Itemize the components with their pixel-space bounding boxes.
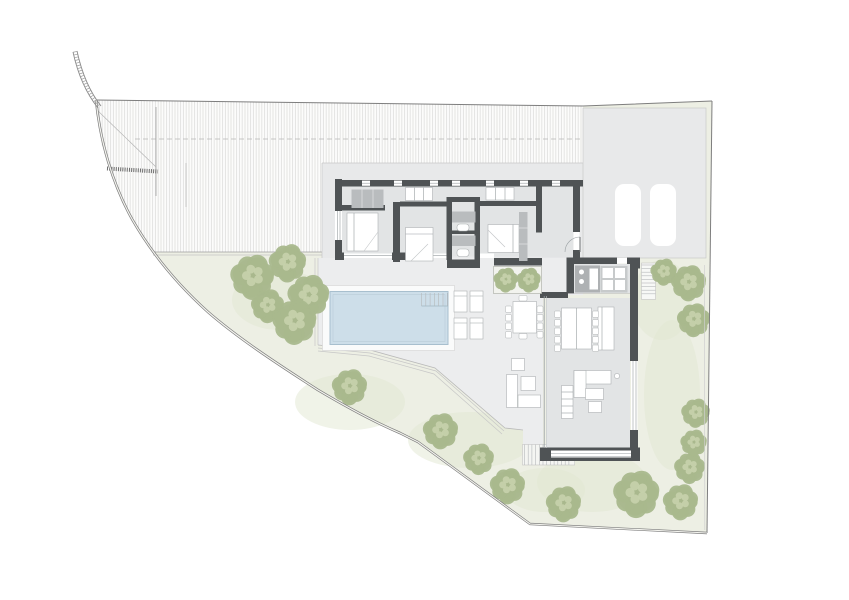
bath-south-block bbox=[447, 260, 480, 269]
sun-lounger bbox=[470, 291, 483, 312]
living-east-wall bbox=[630, 264, 638, 361]
dining-chair bbox=[506, 315, 512, 322]
utility-door-opening bbox=[617, 258, 627, 264]
outdoor-dining-table bbox=[513, 302, 537, 334]
dining-chair bbox=[519, 334, 527, 340]
bed3-wardrobe bbox=[519, 212, 528, 261]
dining-chair bbox=[555, 337, 561, 344]
bed3-north-partition bbox=[480, 201, 540, 206]
master-bed bbox=[347, 213, 378, 251]
sink-bowl-1 bbox=[579, 270, 584, 275]
pool-area bbox=[323, 286, 455, 351]
utility-north-wall bbox=[574, 258, 617, 265]
counter-appliance bbox=[590, 269, 599, 290]
dining-chair bbox=[593, 311, 599, 318]
south-corner bbox=[335, 253, 344, 261]
sun-lounger bbox=[454, 291, 467, 312]
living-se-corner bbox=[630, 430, 638, 449]
kitchen-island bbox=[598, 307, 614, 350]
appliance-4 bbox=[615, 280, 625, 290]
dining-chair bbox=[519, 296, 527, 302]
sink-bowl-2 bbox=[579, 279, 584, 284]
dining-chair bbox=[593, 320, 599, 327]
parking-spot bbox=[615, 184, 641, 246]
master-wardrobe bbox=[352, 190, 384, 209]
dining-chair bbox=[537, 306, 543, 313]
shelf-unit bbox=[562, 386, 574, 419]
dining-chair bbox=[537, 323, 543, 330]
site-plan-drawing bbox=[0, 0, 849, 600]
bath1-vanity bbox=[452, 212, 476, 223]
bed2-closet bbox=[406, 188, 433, 201]
dining-chair bbox=[593, 328, 599, 335]
dining-chair bbox=[555, 328, 561, 335]
dining-chair bbox=[555, 311, 561, 318]
bath2-toilet bbox=[457, 249, 469, 257]
dining-chair bbox=[506, 323, 512, 330]
partition-bed3-stairhall bbox=[536, 187, 542, 233]
dining-chair bbox=[555, 345, 561, 352]
coffee-table bbox=[586, 389, 604, 400]
partition-bath-bed3 bbox=[475, 197, 481, 260]
west-window bbox=[335, 211, 342, 240]
east-door-opening bbox=[574, 232, 580, 250]
parking-pad bbox=[583, 108, 706, 258]
east-wall bbox=[573, 180, 580, 232]
dining-chair bbox=[593, 337, 599, 344]
bed2-north-partition bbox=[400, 202, 452, 207]
dining-chair bbox=[555, 320, 561, 327]
partition-bed2-bath bbox=[447, 197, 453, 260]
planter-box bbox=[494, 267, 542, 294]
bath2-vanity bbox=[452, 236, 476, 247]
bed3-south-wall bbox=[494, 258, 542, 266]
bed2-bed bbox=[406, 228, 434, 262]
lounge-chair bbox=[589, 402, 602, 413]
dining-chair bbox=[506, 332, 512, 339]
parking-spot bbox=[650, 184, 676, 246]
outdoor-sofa-bottom bbox=[518, 395, 541, 408]
bath1-toilet bbox=[457, 224, 469, 231]
partition-master-bed2 bbox=[393, 202, 400, 262]
outdoor-coffee-table bbox=[521, 377, 536, 391]
side-table bbox=[614, 373, 619, 378]
appliance-2 bbox=[615, 268, 625, 278]
dining-chair bbox=[537, 332, 543, 339]
sun-lounger bbox=[454, 318, 467, 339]
outdoor-sofa-left bbox=[507, 375, 518, 408]
dining-chair bbox=[506, 306, 512, 313]
bed3-bed bbox=[488, 225, 519, 253]
sun-lounger bbox=[470, 318, 483, 339]
utility-west-wall bbox=[567, 258, 575, 294]
living-east-glazing bbox=[631, 361, 638, 430]
appliance-1 bbox=[603, 268, 614, 278]
dining-chair bbox=[593, 345, 599, 352]
stair-hall-floor bbox=[542, 187, 573, 258]
bed3-closet bbox=[486, 188, 514, 201]
appliance-3 bbox=[603, 280, 614, 290]
floor-plan-page bbox=[0, 0, 849, 600]
sofa-chaise bbox=[574, 371, 586, 398]
outdoor-armchair bbox=[512, 359, 525, 371]
bed3-south-glazing bbox=[480, 254, 494, 259]
dining-chair bbox=[537, 315, 543, 322]
